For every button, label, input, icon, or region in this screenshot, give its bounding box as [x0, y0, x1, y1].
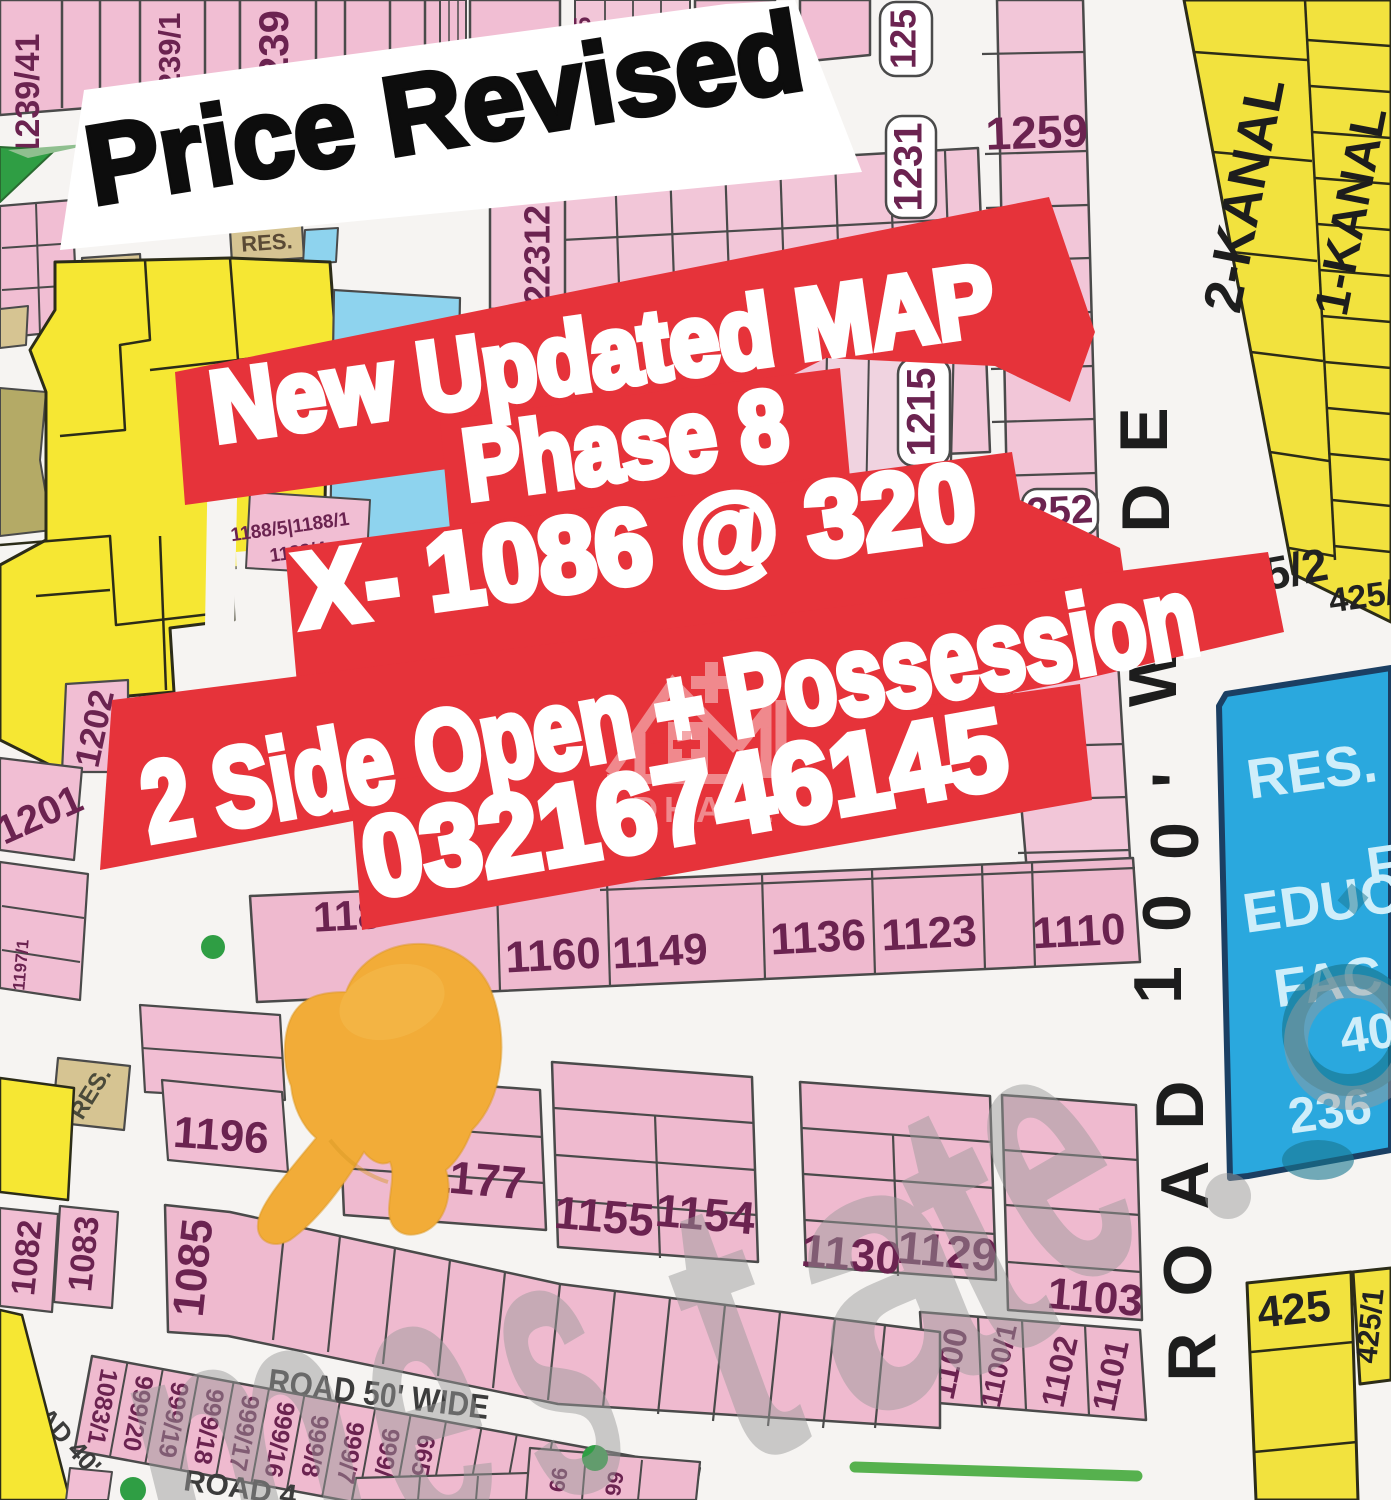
svg-text:425/: 425/ [1326, 574, 1391, 621]
svg-text:R: R [1154, 1332, 1230, 1381]
svg-text:': ' [1138, 772, 1214, 788]
svg-text:1110: 1110 [1031, 905, 1126, 959]
svg-text:1160: 1160 [504, 929, 602, 983]
svg-text:40: 40 [1336, 1001, 1391, 1064]
svg-text:1082: 1082 [4, 1218, 50, 1297]
svg-text:22312: 22312 [517, 205, 558, 305]
svg-text:D: D [1108, 483, 1184, 532]
svg-text:D: D [1142, 1080, 1218, 1129]
svg-text:1149: 1149 [611, 925, 709, 979]
svg-text:1259: 1259 [985, 104, 1089, 160]
svg-text:0: 0 [1137, 822, 1213, 860]
svg-text:425: 425 [1255, 1281, 1333, 1337]
svg-text:1239/41: 1239/41 [9, 34, 47, 157]
svg-text:1231: 1231 [887, 123, 931, 212]
svg-text:1136: 1136 [769, 911, 867, 965]
svg-text:1215: 1215 [900, 368, 944, 457]
svg-text:DHA: DHA [632, 789, 728, 830]
svg-text:1196: 1196 [172, 1108, 271, 1164]
svg-text:125: 125 [883, 9, 924, 69]
svg-text:RES.: RES. [240, 228, 293, 257]
svg-text:1123: 1123 [880, 907, 978, 961]
svg-text:1: 1 [1120, 966, 1196, 1004]
svg-text:.'.: .'. [750, 796, 774, 829]
svg-text:E: E [1106, 407, 1182, 452]
svg-text:0: 0 [1129, 894, 1205, 932]
